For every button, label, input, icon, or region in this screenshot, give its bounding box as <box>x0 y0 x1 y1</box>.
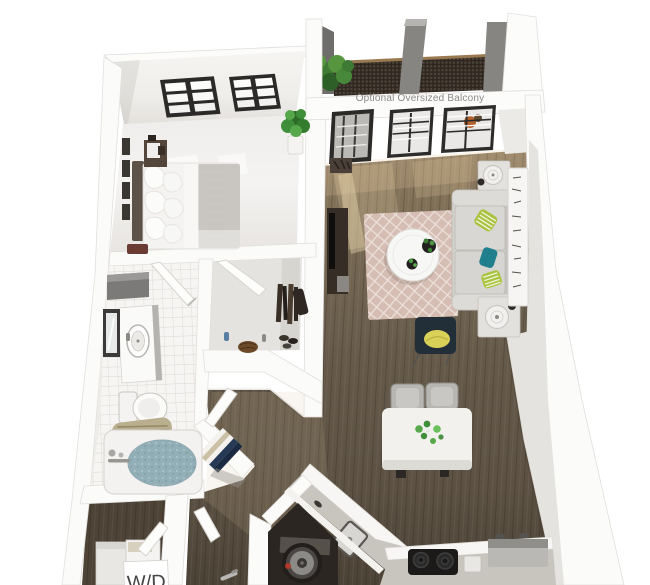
svg-text:W/D: W/D <box>127 571 167 585</box>
svg-text:Optional Oversized Balcony: Optional Oversized Balcony <box>356 93 485 104</box>
